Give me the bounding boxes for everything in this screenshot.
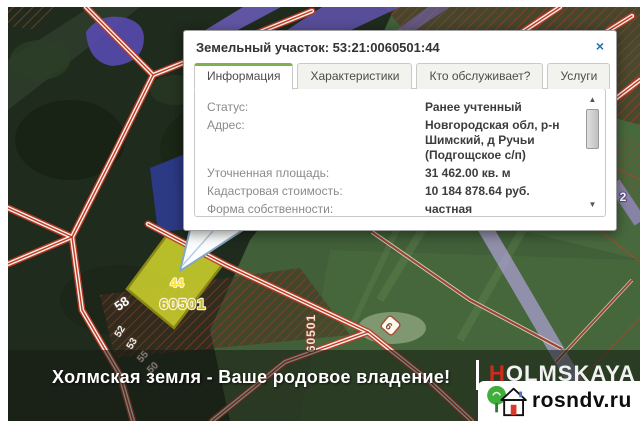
row-value: Ранее учтенный <box>425 100 593 115</box>
info-row-address: Адрес: Новгородская обл, р-н Шимский, д … <box>207 118 593 163</box>
ad-slogan: Холмская земля - Ваше родовое владение! <box>52 367 450 388</box>
row-value: Новгородская обл, р-н Шимский, д Ручьи (… <box>425 118 593 163</box>
info-row-cadastral-value: Кадастровая стоимость: 10 184 878.64 руб… <box>207 184 593 199</box>
row-label: Форма собственности: <box>207 202 425 217</box>
scrollbar-thumb[interactable] <box>586 109 599 149</box>
parcel-44-label: 44 <box>170 276 184 290</box>
panel-scrollbar[interactable]: ▲ ▼ <box>585 94 600 211</box>
tab-who-serves[interactable]: Кто обслуживает? <box>416 63 543 89</box>
parcel-info-popup: Земельный участок: 53:21:0060501:44 × Ин… <box>183 30 617 231</box>
watermark-site: rosndv.ru <box>532 389 632 413</box>
row-value: 10 184 878.64 руб. <box>425 184 593 199</box>
close-icon[interactable]: × <box>596 40 604 53</box>
house-tree-icon <box>485 384 529 418</box>
tab-services[interactable]: Услуги <box>547 63 610 89</box>
info-row-ownership: Форма собственности: частная <box>207 202 593 217</box>
info-row-area: Уточненная площадь: 31 462.00 кв. м <box>207 166 593 181</box>
info-row-status: Статус: Ранее учтенный <box>207 100 593 115</box>
road-2-label: 2 <box>620 190 627 204</box>
screenshot-root: 44 60501 58 52 53 55 50 60501 6 2 Холмск… <box>0 0 640 426</box>
row-label: Уточненная площадь: <box>207 166 425 181</box>
row-value: частная <box>425 202 593 217</box>
row-label: Кадастровая стоимость: <box>207 184 425 199</box>
popup-info-panel: Статус: Ранее учтенный Адрес: Новгородск… <box>194 88 606 217</box>
popup-title: Земельный участок: 53:21:0060501:44 <box>196 40 440 55</box>
quarter-60501-label: 60501 <box>160 296 207 313</box>
row-value: 31 462.00 кв. м <box>425 166 593 181</box>
row-label: Статус: <box>207 100 425 115</box>
tab-information[interactable]: Информация <box>194 63 293 90</box>
row-label: Адрес: <box>207 118 425 163</box>
popup-title-row: Земельный участок: 53:21:0060501:44 × <box>184 31 616 61</box>
scroll-down-icon[interactable]: ▼ <box>585 199 600 211</box>
tab-characteristics[interactable]: Характеристики <box>297 63 412 89</box>
quarter-60501-vertical-label: 60501 <box>304 314 318 352</box>
rosndv-watermark: rosndv.ru <box>478 381 640 421</box>
scroll-up-icon[interactable]: ▲ <box>585 94 600 106</box>
popup-tabs: Информация Характеристики Кто обслуживае… <box>194 63 606 89</box>
